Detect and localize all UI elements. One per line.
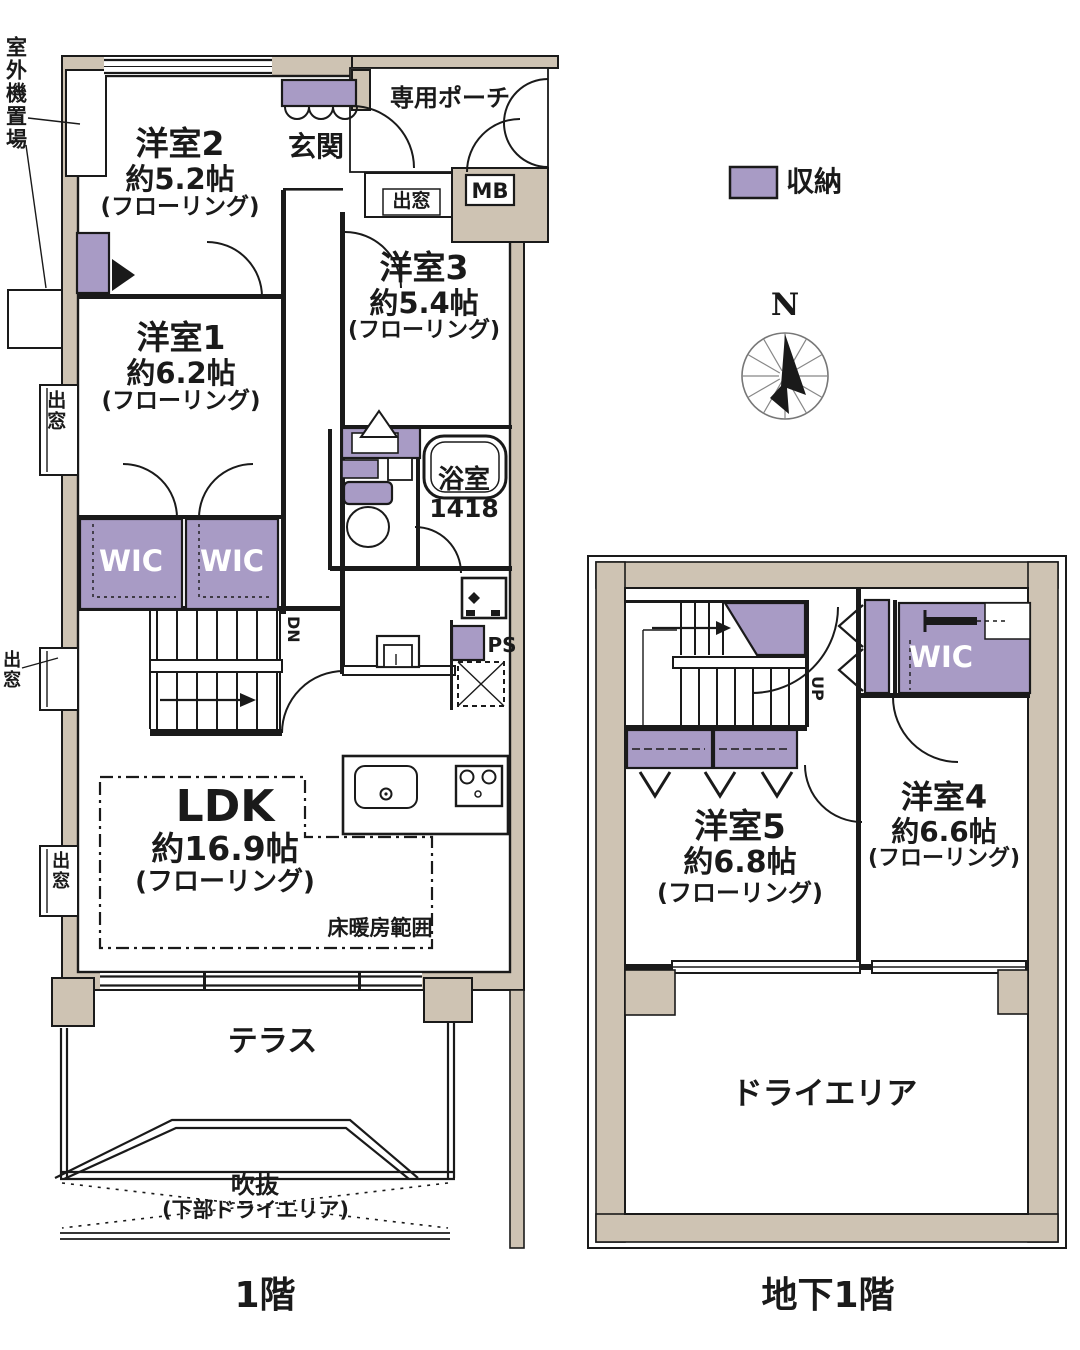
room5-flooring: (フローリング) (630, 880, 850, 907)
porch-top-wall (352, 56, 558, 68)
meter-box-label: MB (464, 180, 516, 204)
bay-window-left2-label: 出窓 (0, 650, 20, 690)
kitchen-counter (343, 756, 508, 834)
void-name: 吹抜 (162, 1172, 348, 1199)
room3-label: 洋室3 約5.4帖 (フローリング) (338, 250, 510, 344)
room4-flooring: (フローリング) (858, 847, 1030, 872)
floor1-title: 1階 (200, 1276, 330, 1316)
hall-cabinet (377, 636, 419, 667)
stairs-down-label: DN (284, 616, 302, 643)
room5-name: 洋室5 (630, 808, 850, 846)
b1-left-wall (596, 562, 625, 1242)
compass (742, 333, 828, 419)
pipe-space-label: PS (486, 634, 518, 656)
room1-size: 約6.2帖 (76, 357, 286, 389)
legend-storage-swatch (730, 167, 777, 198)
room1-label: 洋室1 約6.2帖 (フローリング) (76, 320, 286, 415)
legend (730, 167, 777, 198)
shoe-cabinet (282, 80, 356, 106)
outdoor-unit-space-left (8, 290, 62, 348)
water-heater (462, 578, 506, 618)
room2-flooring: (フローリング) (75, 195, 285, 221)
compass-north-label: N (766, 288, 804, 323)
b1-bottom-wall (596, 1214, 1058, 1242)
terrace-label: テラス (210, 1025, 335, 1059)
room1-name: 洋室1 (76, 320, 286, 357)
dry-area-label: ドライエリア (722, 1077, 927, 1112)
bathroom-name: 浴室 (416, 466, 512, 495)
floor1-plan (8, 56, 558, 1248)
bay-window-left3-label: 出窓 (49, 851, 69, 891)
b1-dryarea-step-right (998, 970, 1028, 1014)
floor-heating-label: 床暖房範囲 (316, 917, 444, 941)
room3-flooring: (フローリング) (338, 319, 510, 344)
ldk-flooring: (フローリング) (100, 868, 350, 897)
bay-window-top-label: 出窓 (383, 191, 440, 212)
room2-label: 洋室2 約5.2帖 (フローリング) (75, 126, 285, 221)
room4-name: 洋室4 (858, 780, 1030, 816)
room4-size: 約6.6帖 (858, 816, 1030, 847)
room2-size: 約5.2帖 (75, 163, 285, 195)
b1-wic-bottom-wall (858, 693, 1030, 698)
ldk-size: 約16.9帖 (100, 831, 350, 868)
b1-top-wall (596, 562, 1058, 588)
b1-room-windows (625, 961, 1028, 973)
pillar-right (424, 978, 472, 1022)
b1-right-wall (1028, 562, 1058, 1242)
legend-storage-label: 収納 (786, 166, 896, 197)
b1-wic-label: WIC (899, 641, 983, 673)
room2-top-window (104, 57, 272, 75)
room3-name: 洋室3 (338, 250, 510, 287)
room3-size: 約5.4帖 (338, 287, 510, 319)
ldk-label: LDK 約16.9帖 (フローリング) (100, 782, 350, 897)
wic-right-label: WIC (186, 545, 278, 577)
pipe-space (452, 626, 484, 660)
room4-label: 洋室4 約6.6帖 (フローリング) (858, 780, 1030, 872)
void-sub: (下部ドライエリア) (162, 1199, 348, 1223)
porch-label: 専用ポーチ (380, 85, 520, 112)
room2-closet (77, 233, 109, 293)
room2-name: 洋室2 (75, 126, 285, 163)
toilet (344, 482, 392, 547)
bay-window-left1-label: 出窓 (44, 390, 65, 432)
entrance-label: 玄関 (283, 131, 349, 162)
right-boundary-wall (510, 990, 524, 1248)
outdoor-unit-label: 室外機置場 (3, 36, 27, 151)
floorplan-page: 室外機置場 洋室2 約5.2帖 (フローリング) 玄関 専用ポーチ 出窓 MB … (0, 0, 1080, 1350)
ldk-terrace-window (100, 973, 422, 989)
basement-title: 地下1階 (738, 1276, 918, 1316)
room1-flooring: (フローリング) (76, 389, 286, 415)
wic-left-label: WIC (80, 545, 182, 577)
b1-closet-strip (865, 600, 889, 693)
bathroom-size: 1418 (416, 495, 512, 523)
ldk-name: LDK (100, 782, 350, 831)
void-label: 吹抜 (下部ドライエリア) (162, 1172, 348, 1222)
bay-window-stairs (22, 648, 78, 710)
pillar-left (52, 978, 94, 1026)
bathroom-label: 浴室 1418 (416, 466, 512, 523)
b1-dryarea-step-left (625, 970, 675, 1015)
room5-label: 洋室5 約6.8帖 (フローリング) (630, 808, 850, 907)
stairs-up-label: UP (808, 676, 826, 701)
b1-wic-wall (893, 600, 897, 695)
room5-size: 約6.8帖 (630, 846, 850, 880)
